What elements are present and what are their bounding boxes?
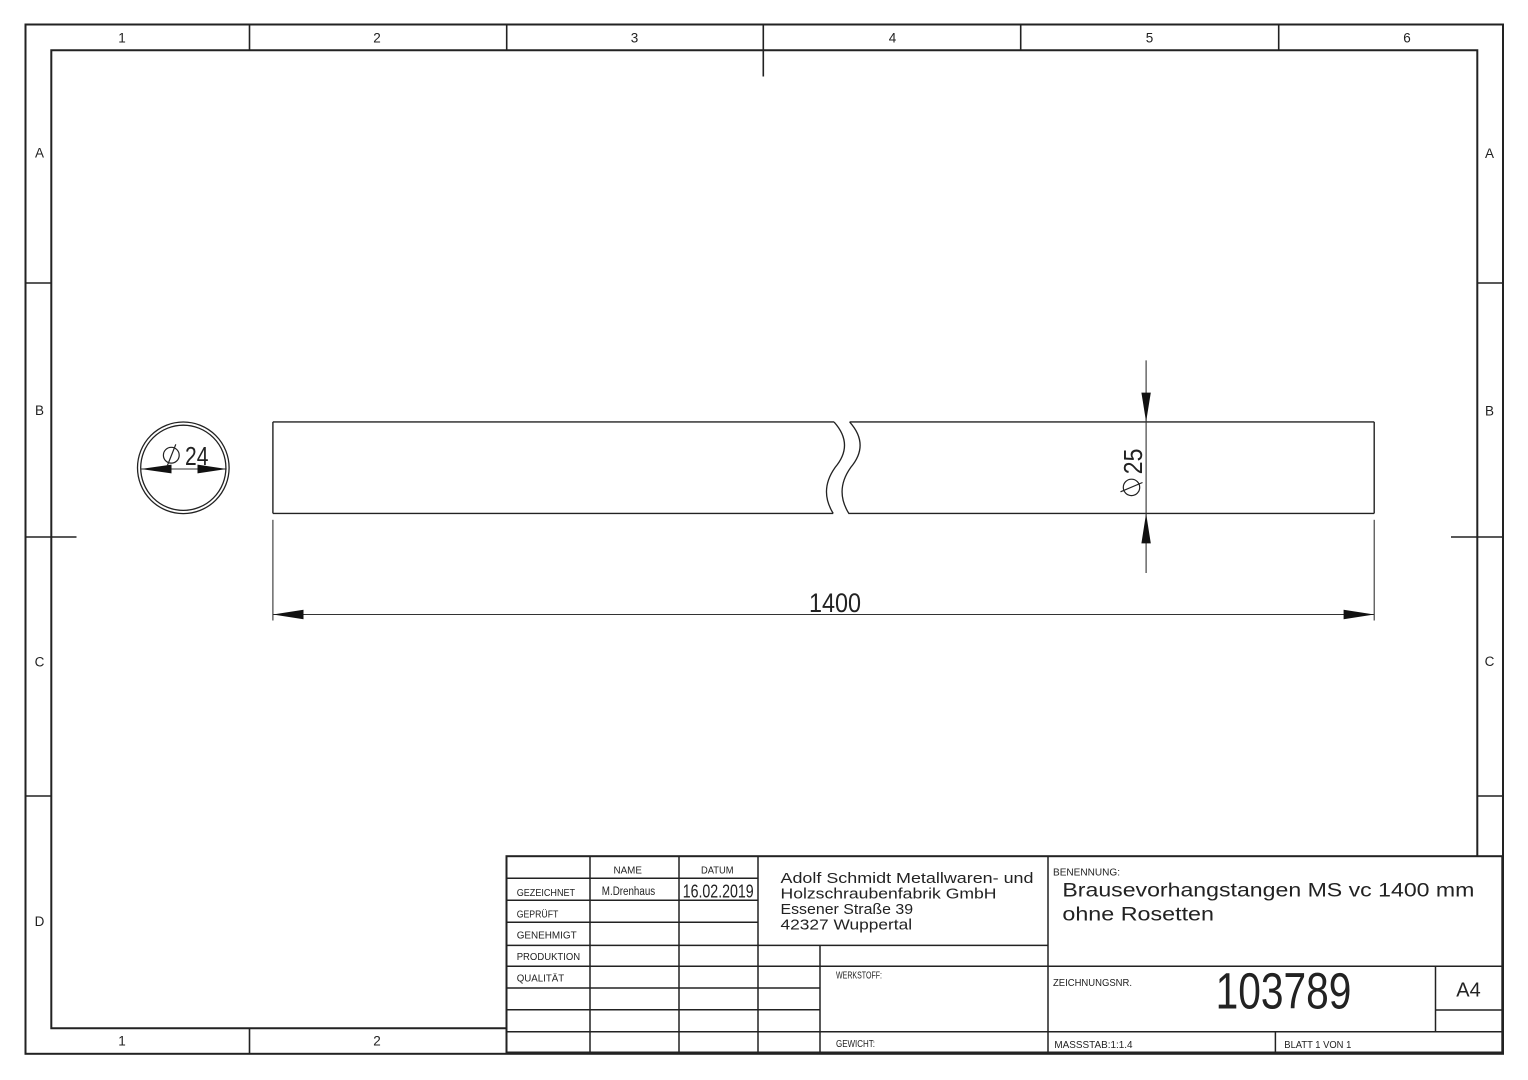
svg-text:GEZEICHNET: GEZEICHNET (517, 887, 576, 899)
svg-text:WERKSTOFF:: WERKSTOFF: (836, 970, 882, 981)
svg-text:NAME: NAME (614, 865, 642, 877)
svg-text:1: 1 (118, 1033, 126, 1048)
svg-text:2: 2 (373, 1033, 381, 1048)
svg-text:BLATT 1 VON 1: BLATT 1 VON 1 (1284, 1039, 1351, 1051)
svg-text:Essener Straße 39: Essener Straße 39 (781, 902, 914, 918)
svg-text:B: B (35, 403, 44, 418)
svg-text:GENEHMIGT: GENEHMIGT (517, 929, 578, 941)
svg-text:Holzschraubenfabrik GmbH: Holzschraubenfabrik GmbH (781, 887, 997, 903)
svg-text:GEWICHT:: GEWICHT: (836, 1039, 875, 1050)
svg-text:DATUM: DATUM (701, 865, 734, 877)
svg-text:5: 5 (1146, 31, 1154, 46)
svg-text:Brausevorhangstangen MS vc 140: Brausevorhangstangen MS vc 1400 mm (1062, 880, 1474, 902)
svg-text:2: 2 (373, 31, 381, 46)
svg-text:C: C (1485, 654, 1495, 669)
svg-text:4: 4 (889, 31, 897, 46)
svg-text:C: C (35, 655, 45, 670)
svg-text:A: A (35, 146, 44, 161)
svg-text:PRODUKTION: PRODUKTION (517, 951, 581, 963)
svg-text:1400: 1400 (809, 588, 861, 618)
svg-text:QUALITÄT: QUALITÄT (517, 972, 565, 984)
svg-text:D: D (35, 914, 45, 929)
svg-text:103789: 103789 (1216, 962, 1352, 1019)
svg-text:Adolf Schmidt Metallwaren- und: Adolf Schmidt Metallwaren- und (781, 871, 1034, 887)
svg-text:6: 6 (1403, 31, 1411, 46)
svg-text:GEPRÜFT: GEPRÜFT (517, 909, 559, 921)
svg-text:1: 1 (118, 31, 126, 46)
svg-text:ZEICHNUNGSNR.: ZEICHNUNGSNR. (1053, 977, 1132, 989)
svg-text:24: 24 (185, 441, 208, 471)
svg-text:3: 3 (631, 31, 639, 46)
svg-text:A: A (1485, 146, 1494, 161)
svg-text:BENENNUNG:: BENENNUNG: (1053, 866, 1120, 878)
svg-text:B: B (1485, 404, 1494, 419)
svg-text:ohne Rosetten: ohne Rosetten (1062, 904, 1214, 926)
svg-text:16.02.2019: 16.02.2019 (683, 881, 754, 902)
svg-text:42327 Wuppertal: 42327 Wuppertal (781, 918, 913, 934)
svg-text:M.Drenhaus: M.Drenhaus (602, 886, 656, 898)
svg-text:MASSSTAB:1:1.4: MASSSTAB:1:1.4 (1054, 1039, 1132, 1051)
svg-text:25: 25 (1118, 449, 1148, 475)
svg-text:A4: A4 (1456, 980, 1480, 1002)
